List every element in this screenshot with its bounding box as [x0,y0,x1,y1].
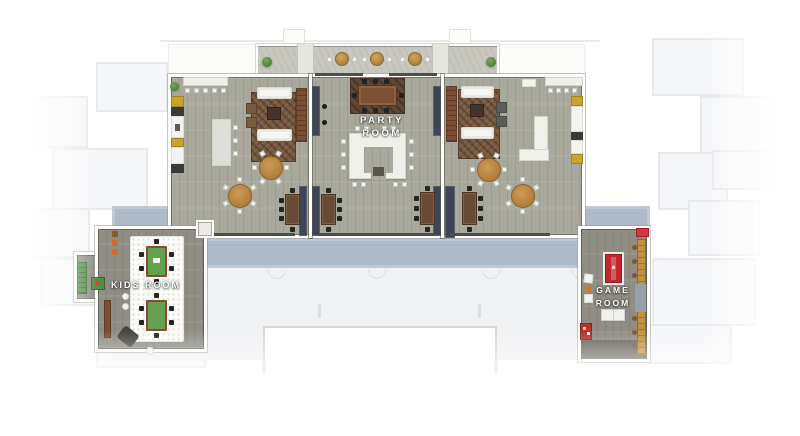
wall-decor [322,120,327,125]
kids-activity-table [146,300,167,331]
game-room-label-line1: GAME [596,285,630,295]
kitchen-counter [571,140,583,154]
wall-decor [322,104,327,109]
pool-table [603,252,624,285]
bar-table [545,77,583,86]
wall-stub [318,304,321,318]
wall-art [112,249,118,255]
window [205,233,295,236]
console-table [522,79,536,87]
window [315,73,363,76]
game-room-label-line2: ROOM [596,298,630,308]
kitchen-counter [171,147,184,164]
refrigerator [571,106,583,132]
party-room-label: PARTY ROOM [338,114,426,140]
armchair [496,102,507,113]
game-room-label: GAME ROOM [590,284,636,310]
play-ball [122,303,129,310]
conference-table [414,186,441,234]
wall-panel [445,186,455,238]
partition-wall [309,74,312,238]
armchair [496,116,507,127]
conference-table [279,188,306,234]
sofa [461,127,494,139]
plant [170,82,179,91]
terrace-pillar [432,44,449,75]
terrace-table [408,52,422,66]
round-dining-table [510,183,536,209]
plant [486,57,496,67]
round-dining-table [258,155,284,181]
game-table [601,309,625,321]
kids-room-label: KIDS ROOM [98,279,194,292]
rooftop-unit [449,29,471,44]
round-dining-table [227,183,253,209]
sofa [257,129,292,141]
window [389,73,437,76]
lounge-rug [458,89,500,159]
bar-stool [185,88,190,93]
armchair [246,103,257,114]
bar-stool [632,245,637,250]
vestibule [196,220,214,238]
kitchen-island [212,119,231,166]
armchair [246,117,257,128]
sofa [461,86,494,98]
parapet-line [160,40,600,42]
side-table [583,273,593,283]
kids-activity-table [146,246,167,277]
sideboard [446,86,457,142]
kitchen-counter [519,149,549,161]
kitchen-cabinet [171,96,184,107]
climbing-panel [77,262,87,294]
kitchen-cabinet [171,164,184,173]
kitchen-cabinet [171,107,184,116]
partition-wall [441,74,444,238]
wall-panel [635,284,646,312]
roof-right [499,44,585,74]
conference-table [315,188,342,234]
round-dining-table [476,157,502,183]
wall-panel [433,86,441,136]
rooftop-unit [283,29,305,44]
floor-plan: PARTY ROOM [0,0,800,436]
sofa [257,87,292,99]
foosball-table [636,228,649,237]
bar-table [183,77,228,86]
courtyard [263,326,497,374]
arcade-machine [580,323,592,340]
kitchen-cabinet [571,96,583,106]
sideboard [296,88,307,142]
coffee-table [470,104,484,117]
play-ball [122,293,129,300]
roof-left [168,44,256,74]
kitchen-cabinet [571,132,583,140]
window [450,233,550,236]
terrace-table [370,52,384,66]
conference-table [456,186,483,234]
kitchen-cabinet [571,154,583,164]
bench [104,300,111,338]
kitchen-cabinet [171,138,184,147]
terrace-pillar [297,44,314,75]
wall-art [112,240,118,246]
wall-art [112,231,118,237]
sink [175,124,180,131]
wall-stub [478,304,481,318]
wall-panel [312,86,320,136]
window [318,233,436,236]
plant [262,57,272,67]
coffee-table [267,107,281,120]
dining-table [358,85,397,106]
play-ball [146,347,154,355]
terrace-table [335,52,349,66]
lounge-rug [251,92,296,162]
